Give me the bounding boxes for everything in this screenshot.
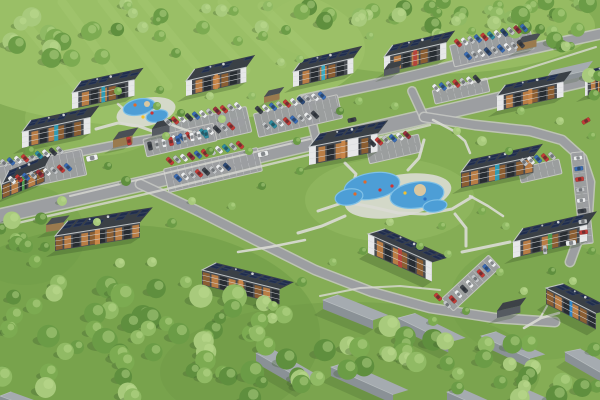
- canopy-highlight: [518, 390, 527, 399]
- plaster-end: [72, 92, 78, 109]
- balcony-bay: [337, 62, 344, 76]
- plaster-end: [309, 146, 316, 165]
- canopy-highlight: [481, 208, 485, 212]
- canopy-highlight: [192, 365, 199, 372]
- canopy-highlight: [44, 243, 49, 248]
- canopy-highlight: [152, 345, 161, 354]
- car: [566, 240, 577, 246]
- canopy-highlight: [175, 49, 180, 54]
- balcony-bay: [196, 79, 203, 93]
- plaster-end: [240, 67, 246, 83]
- balcony-bay: [74, 121, 81, 136]
- car-windshield: [127, 139, 131, 143]
- canopy-highlight: [125, 177, 130, 182]
- entrance-accent: [398, 247, 402, 268]
- roof-vent: [329, 54, 332, 57]
- balcony-bay: [311, 68, 318, 82]
- canopy-highlight: [117, 88, 121, 92]
- canopy-highlight: [465, 308, 469, 312]
- canopy-highlight: [441, 223, 445, 227]
- canopy-highlight: [457, 369, 463, 375]
- balcony-bay: [318, 146, 325, 162]
- canopy-highlight: [497, 1, 502, 6]
- sand-circle: [414, 184, 426, 196]
- balcony-bay: [515, 93, 522, 107]
- canopy-highlight: [260, 377, 266, 383]
- canopy-highlight: [132, 9, 137, 14]
- canopy-highlight: [102, 330, 114, 342]
- canopy-highlight: [108, 303, 117, 312]
- canopy-highlight: [123, 354, 132, 363]
- canopy-highlight: [231, 301, 240, 310]
- car-windshield: [543, 248, 546, 252]
- canopy-highlight: [447, 251, 451, 255]
- balcony-bay: [115, 227, 122, 241]
- balcony-bay: [385, 244, 391, 263]
- balcony-bay: [246, 283, 253, 297]
- entrance-accent: [95, 229, 100, 245]
- canopy-highlight: [88, 25, 96, 33]
- car-windshield: [579, 188, 583, 192]
- canopy-highlight: [484, 338, 492, 346]
- canopy-highlight: [551, 27, 557, 33]
- canopy-highlight: [436, 9, 441, 14]
- balcony-bay: [421, 49, 428, 64]
- canopy-highlight: [202, 22, 209, 29]
- plaster-end: [440, 43, 446, 60]
- balcony-bay: [221, 73, 228, 87]
- canopy-highlight: [523, 381, 529, 387]
- plaster-end: [368, 234, 374, 256]
- canopy-highlight: [156, 103, 160, 107]
- plaster-end: [22, 131, 29, 149]
- play-equipment: [423, 197, 426, 200]
- canopy-highlight: [299, 56, 303, 60]
- canopy-highlight: [171, 219, 176, 224]
- car: [578, 219, 587, 224]
- roof-vent: [235, 268, 237, 270]
- canopy-highlight: [264, 338, 273, 347]
- canopy-highlight: [70, 51, 78, 59]
- canopy-highlight: [33, 299, 41, 307]
- canopy-highlight: [419, 243, 423, 247]
- canopy-highlight: [508, 359, 515, 366]
- canopy-highlight: [554, 387, 564, 397]
- canopy-highlight: [299, 168, 303, 172]
- roof-vent: [336, 131, 338, 133]
- canopy-highlight: [558, 9, 565, 16]
- entrance-accent: [101, 86, 105, 103]
- play-equipment: [353, 192, 356, 195]
- canopy-highlight: [387, 317, 397, 327]
- canopy-highlight: [13, 309, 21, 317]
- entrance-accent: [321, 65, 325, 81]
- car-windshield: [579, 199, 583, 203]
- roof-vent: [222, 63, 225, 66]
- canopy-highlight: [481, 137, 486, 142]
- canopy-highlight: [220, 6, 226, 12]
- play-equipment: [378, 188, 381, 191]
- balcony-bay: [409, 254, 415, 273]
- canopy-highlight: [576, 24, 583, 31]
- roof-vent: [584, 296, 587, 299]
- canopy-highlight: [551, 268, 555, 272]
- canopy-highlight: [142, 23, 147, 28]
- balcony-bay: [64, 235, 71, 249]
- canopy-highlight: [561, 375, 570, 384]
- canopy-highlight: [19, 17, 26, 24]
- canopy-highlight: [76, 341, 83, 348]
- canopy-highlight: [323, 341, 334, 352]
- balcony-bay: [523, 240, 530, 255]
- balcony-bay: [73, 234, 80, 248]
- roof-vent: [109, 75, 112, 78]
- canopy-highlight: [580, 380, 589, 389]
- roof-vent: [400, 236, 402, 238]
- canopy-highlight: [429, 2, 435, 8]
- canopy-highlight: [202, 333, 212, 343]
- canopy-highlight: [226, 369, 235, 378]
- canopy-highlight: [272, 302, 277, 307]
- canopy-highlight: [101, 50, 109, 58]
- balcony-bay: [82, 91, 89, 106]
- plaster-end: [84, 117, 91, 134]
- canopy-highlight: [43, 379, 53, 389]
- roof-vent: [209, 66, 211, 68]
- canopy-highlight: [300, 5, 308, 13]
- balcony-bay: [327, 144, 334, 160]
- balcony-bay: [377, 240, 383, 259]
- balcony-bay: [532, 238, 539, 253]
- canopy-highlight: [29, 147, 34, 152]
- canopy-highlight: [443, 334, 451, 342]
- canopy-highlight: [151, 258, 156, 263]
- canopy-highlight: [456, 383, 462, 389]
- car-windshield: [581, 220, 585, 224]
- canopy-highlight: [52, 286, 60, 294]
- balcony-bay: [204, 77, 211, 91]
- balcony-bay: [107, 229, 114, 243]
- canopy-highlight: [446, 357, 453, 364]
- canopy-highlight: [159, 31, 165, 37]
- canopy-highlight: [528, 337, 536, 345]
- car-windshield: [577, 167, 581, 171]
- canopy-highlight: [165, 318, 172, 325]
- canopy-highlight: [280, 59, 284, 63]
- canopy-highlight: [260, 22, 267, 29]
- aerial-development-render: [0, 0, 600, 400]
- canopy-highlight: [539, 25, 544, 30]
- canopy-highlight: [233, 7, 238, 12]
- play-equipment: [363, 180, 366, 183]
- canopy-highlight: [129, 316, 138, 325]
- plaster-end: [293, 71, 299, 87]
- canopy-highlight: [559, 118, 563, 122]
- canopy-highlight: [209, 148, 213, 152]
- canopy-highlight: [499, 269, 503, 273]
- plaster-end: [128, 80, 134, 97]
- canopy-highlight: [136, 332, 143, 339]
- entrance-accent: [548, 233, 552, 250]
- roof-vent: [413, 243, 416, 246]
- balcony-bay: [203, 272, 210, 286]
- canopy-highlight: [199, 287, 210, 298]
- stair-core: [348, 137, 359, 157]
- roof-vent: [536, 78, 539, 81]
- car-windshield: [576, 156, 580, 160]
- canopy-highlight: [301, 278, 306, 283]
- canopy-highlight: [221, 116, 225, 120]
- canopy-highlight: [394, 103, 398, 107]
- canopy-highlight: [508, 148, 512, 152]
- balcony-bay: [539, 87, 546, 101]
- canopy-highlight: [127, 2, 131, 6]
- car: [543, 246, 548, 255]
- balcony-bay: [124, 226, 131, 240]
- canopy-highlight: [250, 363, 261, 374]
- canopy-highlight: [147, 309, 158, 320]
- balcony-bay: [429, 47, 436, 62]
- balcony-bay: [361, 138, 368, 154]
- canopy-highlight: [251, 93, 255, 97]
- canopy-highlight: [316, 372, 323, 379]
- canopy-highlight: [496, 8, 503, 15]
- car: [576, 187, 585, 192]
- canopy-highlight: [471, 28, 475, 32]
- entrance-accent: [495, 164, 499, 181]
- canopy-highlight: [362, 248, 366, 252]
- canopy-highlight: [256, 327, 264, 335]
- plaster-end: [347, 58, 353, 74]
- canopy-highlight: [346, 361, 356, 371]
- canopy-highlight: [34, 256, 40, 262]
- car: [573, 155, 582, 160]
- canopy-highlight: [456, 128, 460, 132]
- entrance-accent: [54, 124, 58, 141]
- roof-vent: [19, 167, 21, 169]
- canopy-highlight: [358, 98, 362, 102]
- play-equipment: [150, 111, 153, 114]
- balcony-bay: [91, 89, 98, 104]
- canopy-highlight: [388, 348, 395, 355]
- play-equipment: [403, 191, 406, 194]
- balcony-bay: [480, 168, 487, 183]
- canopy-highlight: [61, 197, 66, 202]
- car: [577, 208, 586, 213]
- canopy-highlight: [431, 19, 439, 27]
- canopy-highlight: [177, 325, 187, 335]
- car-windshield: [582, 230, 586, 234]
- canopy-highlight: [285, 26, 290, 31]
- canopy-highlight: [131, 390, 139, 398]
- canopy-highlight: [519, 8, 528, 17]
- canopy-highlight: [232, 287, 244, 299]
- canopy-highlight: [553, 33, 561, 41]
- roof-vent: [488, 156, 490, 158]
- canopy-highlight: [203, 352, 213, 362]
- plaster-end: [497, 95, 504, 111]
- canopy-highlight: [296, 138, 300, 142]
- balcony-bay: [328, 64, 335, 78]
- car: [577, 198, 586, 203]
- canopy-highlight: [510, 336, 519, 345]
- plaster-end: [513, 240, 520, 258]
- canopy-highlight: [107, 163, 111, 167]
- canopy-highlight: [282, 308, 290, 316]
- canopy-highlight: [0, 369, 10, 379]
- canopy-highlight: [46, 327, 57, 338]
- canopy-highlight: [482, 351, 491, 360]
- canopy-highlight: [455, 17, 460, 22]
- canopy-highlight: [572, 278, 576, 282]
- roof-vent: [541, 225, 543, 227]
- roof-vent: [251, 272, 254, 275]
- balcony-bay: [548, 86, 555, 100]
- sand-circle: [144, 101, 150, 107]
- canopy-highlight: [180, 110, 184, 114]
- balcony-bay: [66, 123, 73, 138]
- roof-vent: [522, 82, 524, 84]
- canopy-highlight: [156, 17, 160, 21]
- canopy-highlight: [185, 277, 191, 283]
- roof-vent: [421, 39, 424, 42]
- canopy-highlight: [57, 276, 65, 284]
- roof-vent: [408, 42, 410, 44]
- car-windshield: [578, 177, 582, 181]
- car-windshield: [580, 209, 584, 213]
- roof-vent: [48, 117, 50, 119]
- canopy-highlight: [15, 38, 24, 47]
- car: [575, 177, 584, 182]
- canopy-highlight: [371, 5, 378, 12]
- entrance-accent: [214, 74, 218, 90]
- canopy-highlight: [205, 4, 210, 9]
- play-equipment: [141, 115, 144, 118]
- balcony-bay: [132, 225, 139, 239]
- entrance-accent: [528, 89, 532, 105]
- canopy-highlight: [116, 24, 122, 30]
- canopy-highlight: [12, 291, 19, 298]
- canopy-highlight: [120, 286, 131, 297]
- balcony-bay: [230, 71, 237, 85]
- canopy-highlight: [355, 17, 360, 22]
- canopy-highlight: [165, 133, 169, 137]
- balcony-bay: [40, 129, 47, 144]
- roof-vent: [89, 218, 91, 220]
- balcony-bay: [31, 131, 38, 146]
- canopy-highlight: [358, 339, 368, 349]
- canopy-highlight: [25, 240, 32, 247]
- canopy-highlight: [261, 183, 265, 187]
- plaster-end: [426, 260, 432, 282]
- canopy-highlight: [369, 33, 373, 37]
- car: [579, 230, 588, 235]
- canopy-highlight: [258, 314, 266, 322]
- roof-vent: [316, 57, 318, 59]
- roof-vent: [62, 114, 65, 117]
- entrance-accent: [341, 140, 345, 159]
- play-equipment: [133, 103, 136, 106]
- car-windshield: [569, 241, 574, 245]
- canopy-highlight: [402, 2, 410, 10]
- canopy-highlight: [248, 389, 259, 400]
- canopy-highlight: [398, 9, 405, 16]
- balcony-bay: [303, 70, 310, 84]
- canopy-highlight: [262, 32, 267, 37]
- canopy-highlight: [284, 351, 294, 361]
- roof-vent: [107, 215, 110, 218]
- car: [574, 166, 583, 171]
- balcony-bay: [471, 170, 478, 185]
- roof-vent: [351, 128, 354, 131]
- canopy-highlight: [493, 17, 500, 24]
- canopy-highlight: [96, 219, 100, 223]
- canopy-highlight: [432, 317, 437, 322]
- balcony-bay: [417, 258, 423, 277]
- canopy-highlight: [119, 259, 124, 264]
- canopy-highlight: [271, 314, 276, 319]
- balcony-bay: [212, 274, 219, 288]
- canopy-highlight: [414, 354, 424, 364]
- canopy-highlight: [40, 214, 46, 220]
- canopy-highlight: [154, 281, 163, 290]
- entrance-accent: [413, 49, 417, 66]
- roof-vent: [557, 221, 560, 224]
- canopy-highlight: [30, 9, 39, 18]
- balcony-bay: [56, 237, 63, 251]
- canopy-highlight: [593, 344, 600, 351]
- canopy-highlight: [10, 213, 18, 221]
- canopy-highlight: [362, 358, 372, 368]
- balcony-bay: [506, 94, 513, 108]
- canopy-highlight: [93, 305, 103, 315]
- canopy-highlight: [499, 377, 506, 384]
- canopy-highlight: [237, 37, 242, 42]
- scene-canvas: [0, 0, 600, 400]
- canopy-highlight: [159, 87, 163, 91]
- plaster-end: [557, 82, 564, 98]
- canopy-highlight: [323, 15, 331, 23]
- entrance-accent: [570, 300, 573, 318]
- balcony-bay: [507, 163, 514, 178]
- roof-vent: [96, 78, 98, 80]
- canopy-highlight: [147, 322, 154, 329]
- canopy-highlight: [389, 219, 393, 223]
- canopy-highlight: [64, 344, 72, 352]
- canopy-highlight: [49, 50, 59, 60]
- balcony-bay: [462, 172, 469, 187]
- canopy-highlight: [267, 2, 272, 7]
- canopy-highlight: [219, 313, 225, 319]
- canopy-highlight: [248, 148, 252, 152]
- canopy-highlight: [203, 369, 211, 377]
- canopy-highlight: [159, 10, 166, 17]
- canopy-highlight: [520, 108, 524, 112]
- canopy-highlight: [300, 377, 309, 386]
- roof-vent: [574, 290, 576, 292]
- canopy-highlight: [332, 259, 336, 263]
- canopy-highlight: [7, 324, 14, 331]
- canopy-highlight: [339, 108, 343, 112]
- canopy-highlight: [209, 93, 213, 97]
- canopy-highlight: [191, 198, 195, 202]
- canopy-highlight: [523, 288, 527, 292]
- play-equipment: [390, 184, 393, 187]
- canopy-highlight: [231, 203, 235, 207]
- plaster-end: [186, 80, 192, 96]
- canopy-highlight: [565, 42, 570, 47]
- roof-vent: [28, 163, 31, 166]
